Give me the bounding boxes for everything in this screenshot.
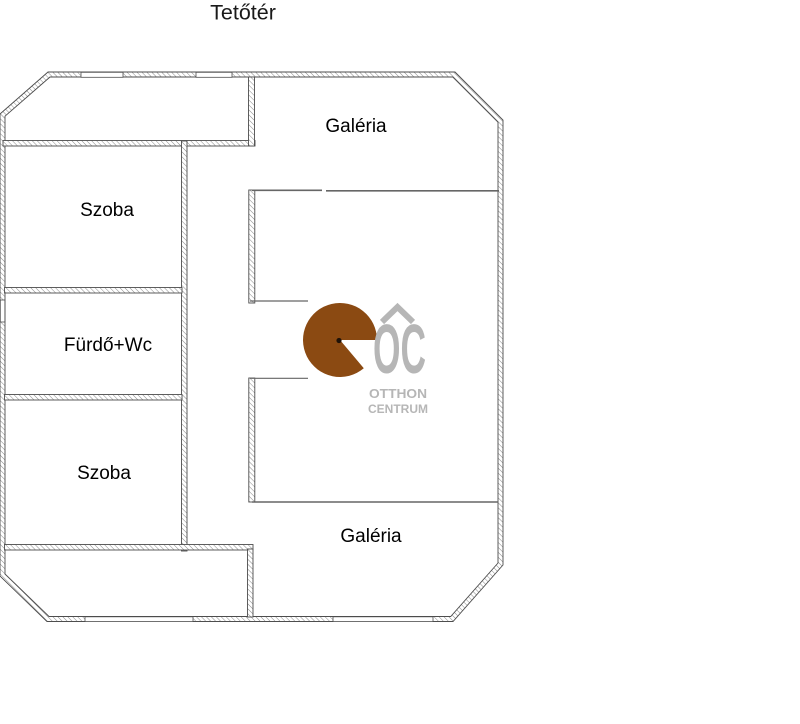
otthon-centrum-watermark: OC OTTHON CENTRUM [303, 303, 428, 416]
floor-plan-drawing: OC OTTHON CENTRUM [0, 0, 800, 724]
interior-wall [5, 395, 183, 401]
floor-plan-page: Tetőtér [0, 0, 800, 724]
interior-wall [248, 549, 254, 617]
room-label-furdo-wc: Fürdő+Wc [64, 335, 152, 357]
interior-wall [182, 141, 188, 551]
room-label-szoba-lower: Szoba [77, 463, 131, 485]
interior-wall [249, 378, 255, 502]
window-opening [333, 617, 433, 622]
oc-logo-center-dot [336, 338, 341, 343]
window-opening [196, 72, 232, 77]
interior-wall [5, 288, 183, 294]
room-label-galeria-upper: Galéria [325, 116, 386, 138]
interior-wall [249, 190, 255, 303]
interior-wall [3, 141, 255, 147]
interior-wall [249, 77, 255, 146]
opening-jamb-line [250, 301, 308, 378]
window-opening [81, 72, 123, 77]
oc-logo-line1: OTTHON [369, 386, 427, 401]
room-label-galeria-lower: Galéria [340, 526, 401, 548]
window-opening [0, 300, 5, 322]
room-label-szoba-upper: Szoba [80, 200, 134, 222]
oc-logo-initials: OC [373, 310, 426, 388]
window-opening [85, 617, 193, 622]
interior-wall [5, 545, 254, 551]
oc-logo-line2: CENTRUM [368, 402, 428, 416]
